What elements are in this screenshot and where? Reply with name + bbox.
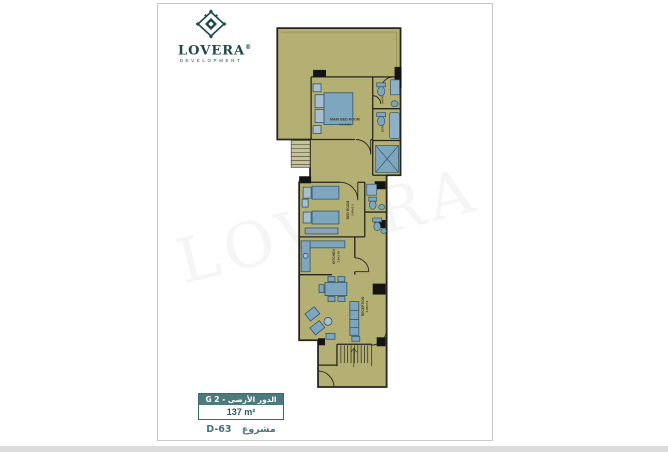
brochure-page: LOVERA® DEVELOPMENT LOVERA: [157, 3, 493, 441]
project-code: D-63: [206, 424, 231, 435]
label-bedroom-dims: 3.45×3.0: [350, 204, 354, 216]
page-bottom-strip: [0, 446, 668, 452]
floor-badge: الدور الأرضى - G 2 137 m²: [198, 393, 284, 420]
label-reception: RECEPTION: [361, 296, 365, 316]
label-reception-dims: 3.85×7.9: [365, 300, 369, 312]
project-label: مشروع: [242, 424, 276, 435]
label-bath-top: BATH: [381, 96, 385, 103]
floor-badge-area: 137 m²: [199, 405, 283, 419]
label-bath-mid: BATH: [381, 125, 385, 132]
floor-badge-title: الدور الأرضى - G 2: [199, 394, 283, 405]
label-main-bedroom: MAIN BED ROOM: [330, 118, 360, 122]
label-kitchen-dims: 2.8×3.45: [336, 251, 340, 263]
label-bedroom: BED ROOM: [346, 201, 350, 220]
label-main-bedroom-dims: 4.0×5.55: [339, 123, 351, 127]
outdoor-stair: [291, 140, 310, 167]
project-line: مشروع D-63: [180, 424, 302, 435]
label-kitchen: KITCHEN: [332, 249, 336, 265]
floor-plan: MAIN BED ROOM 4.0×5.55 BED ROOM 3.45×3.0…: [158, 4, 492, 440]
